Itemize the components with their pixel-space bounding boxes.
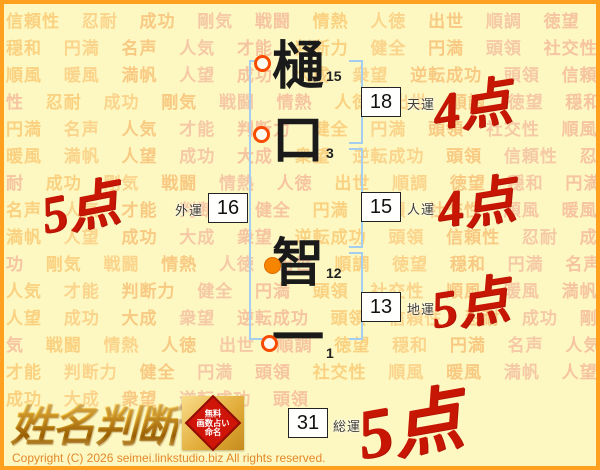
- chiun-score: 5点: [425, 256, 514, 342]
- stroke-count-1: 15: [326, 68, 352, 84]
- seal-line-3: 命名: [196, 428, 229, 437]
- free-fortune-seal[interactable]: 無料 画数占い 命名: [182, 396, 244, 450]
- char-marker-2[interactable]: [253, 126, 270, 143]
- stroke-count-3: 12: [326, 265, 352, 281]
- name-char-2: 口: [266, 114, 330, 170]
- seal-line-2: 画数占い: [196, 418, 229, 427]
- gaiun-label: 外運: [175, 200, 203, 219]
- gaiun-score: 5点: [34, 159, 125, 248]
- seal-line-1: 無料: [196, 409, 229, 418]
- chiun-value-box: 13: [361, 292, 401, 322]
- char-marker-3[interactable]: [264, 257, 281, 274]
- name-char-1: 樋: [266, 40, 330, 96]
- seimei-handan-result-page: 信頼性 忍耐 成功 剛気 戦闘 情熱 人徳 出世 順調 徳望 穏和 円満 名声 …: [0, 0, 600, 470]
- stroke-count-4: 1: [326, 345, 352, 361]
- gaiun-bracket: [249, 60, 263, 340]
- char-marker-1[interactable]: [254, 55, 271, 72]
- stroke-count-2: 3: [326, 145, 352, 161]
- char-marker-4[interactable]: [261, 335, 278, 352]
- soun-score: 5点: [348, 362, 469, 470]
- jinun-score: 4点: [431, 156, 520, 242]
- gaiun-value-box: 16: [208, 193, 248, 223]
- site-logo[interactable]: 姓名判断: [10, 390, 178, 454]
- tenun-value-box: 18: [361, 87, 401, 117]
- soun-value-box: 31: [288, 408, 328, 438]
- seal-text: 無料 画数占い 命名: [196, 409, 229, 437]
- copyright-text: Copyright (C) 2026 seimei.linkstudio.biz…: [12, 451, 325, 465]
- jinun-label: 人運: [407, 199, 435, 218]
- tenun-score: 4点: [427, 58, 516, 144]
- jinun-value-box: 15: [361, 192, 401, 222]
